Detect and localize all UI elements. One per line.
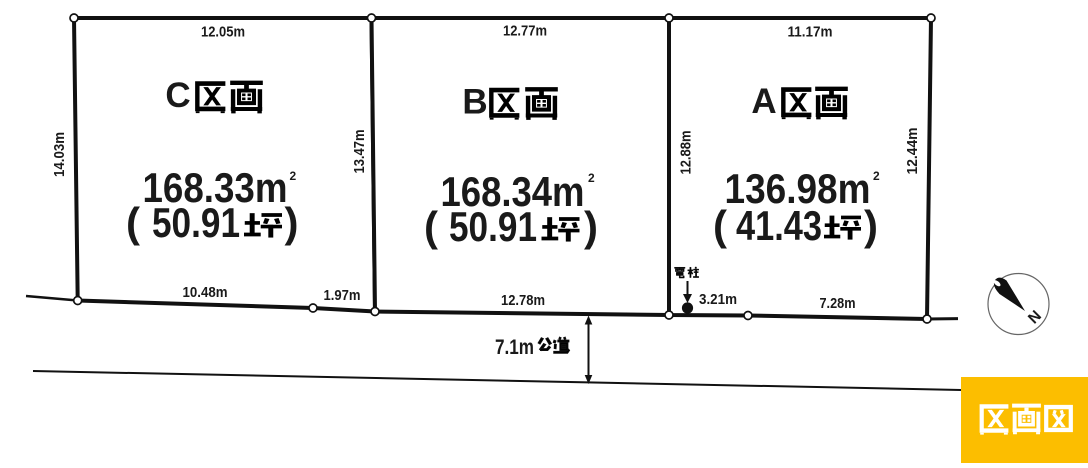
svg-text:2: 2 bbox=[873, 169, 880, 183]
svg-text:2: 2 bbox=[588, 171, 595, 185]
svg-text:(: ( bbox=[126, 199, 140, 246]
svg-text:10.48m: 10.48m bbox=[183, 284, 228, 301]
svg-text:3.21m: 3.21m bbox=[699, 291, 737, 308]
svg-text:1.97m: 1.97m bbox=[324, 287, 361, 304]
svg-text:13.47m: 13.47m bbox=[351, 130, 368, 174]
svg-text:50.91: 50.91 bbox=[449, 203, 537, 250]
svg-text:12.78m: 12.78m bbox=[501, 292, 545, 309]
svg-text:7.1m: 7.1m bbox=[495, 336, 534, 359]
svg-text:): ) bbox=[285, 199, 299, 246]
svg-text:41.43: 41.43 bbox=[736, 202, 822, 249]
svg-text:C: C bbox=[165, 76, 190, 115]
svg-text:12.77m: 12.77m bbox=[503, 23, 547, 40]
svg-text:50.91: 50.91 bbox=[152, 199, 240, 246]
svg-text:B: B bbox=[462, 83, 487, 122]
svg-text:(: ( bbox=[424, 203, 438, 250]
svg-text:14.03m: 14.03m bbox=[51, 132, 68, 177]
svg-text:): ) bbox=[584, 203, 598, 250]
svg-text:11.17m: 11.17m bbox=[788, 24, 833, 41]
svg-text:7.28m: 7.28m bbox=[820, 295, 856, 312]
svg-text:12.05m: 12.05m bbox=[201, 24, 245, 41]
svg-text:(: ( bbox=[713, 202, 727, 249]
svg-text:2: 2 bbox=[290, 169, 297, 183]
svg-text:12.44m: 12.44m bbox=[904, 128, 921, 175]
svg-text:): ) bbox=[864, 202, 878, 249]
svg-text:A: A bbox=[751, 82, 776, 121]
svg-text:12.88m: 12.88m bbox=[678, 131, 695, 175]
